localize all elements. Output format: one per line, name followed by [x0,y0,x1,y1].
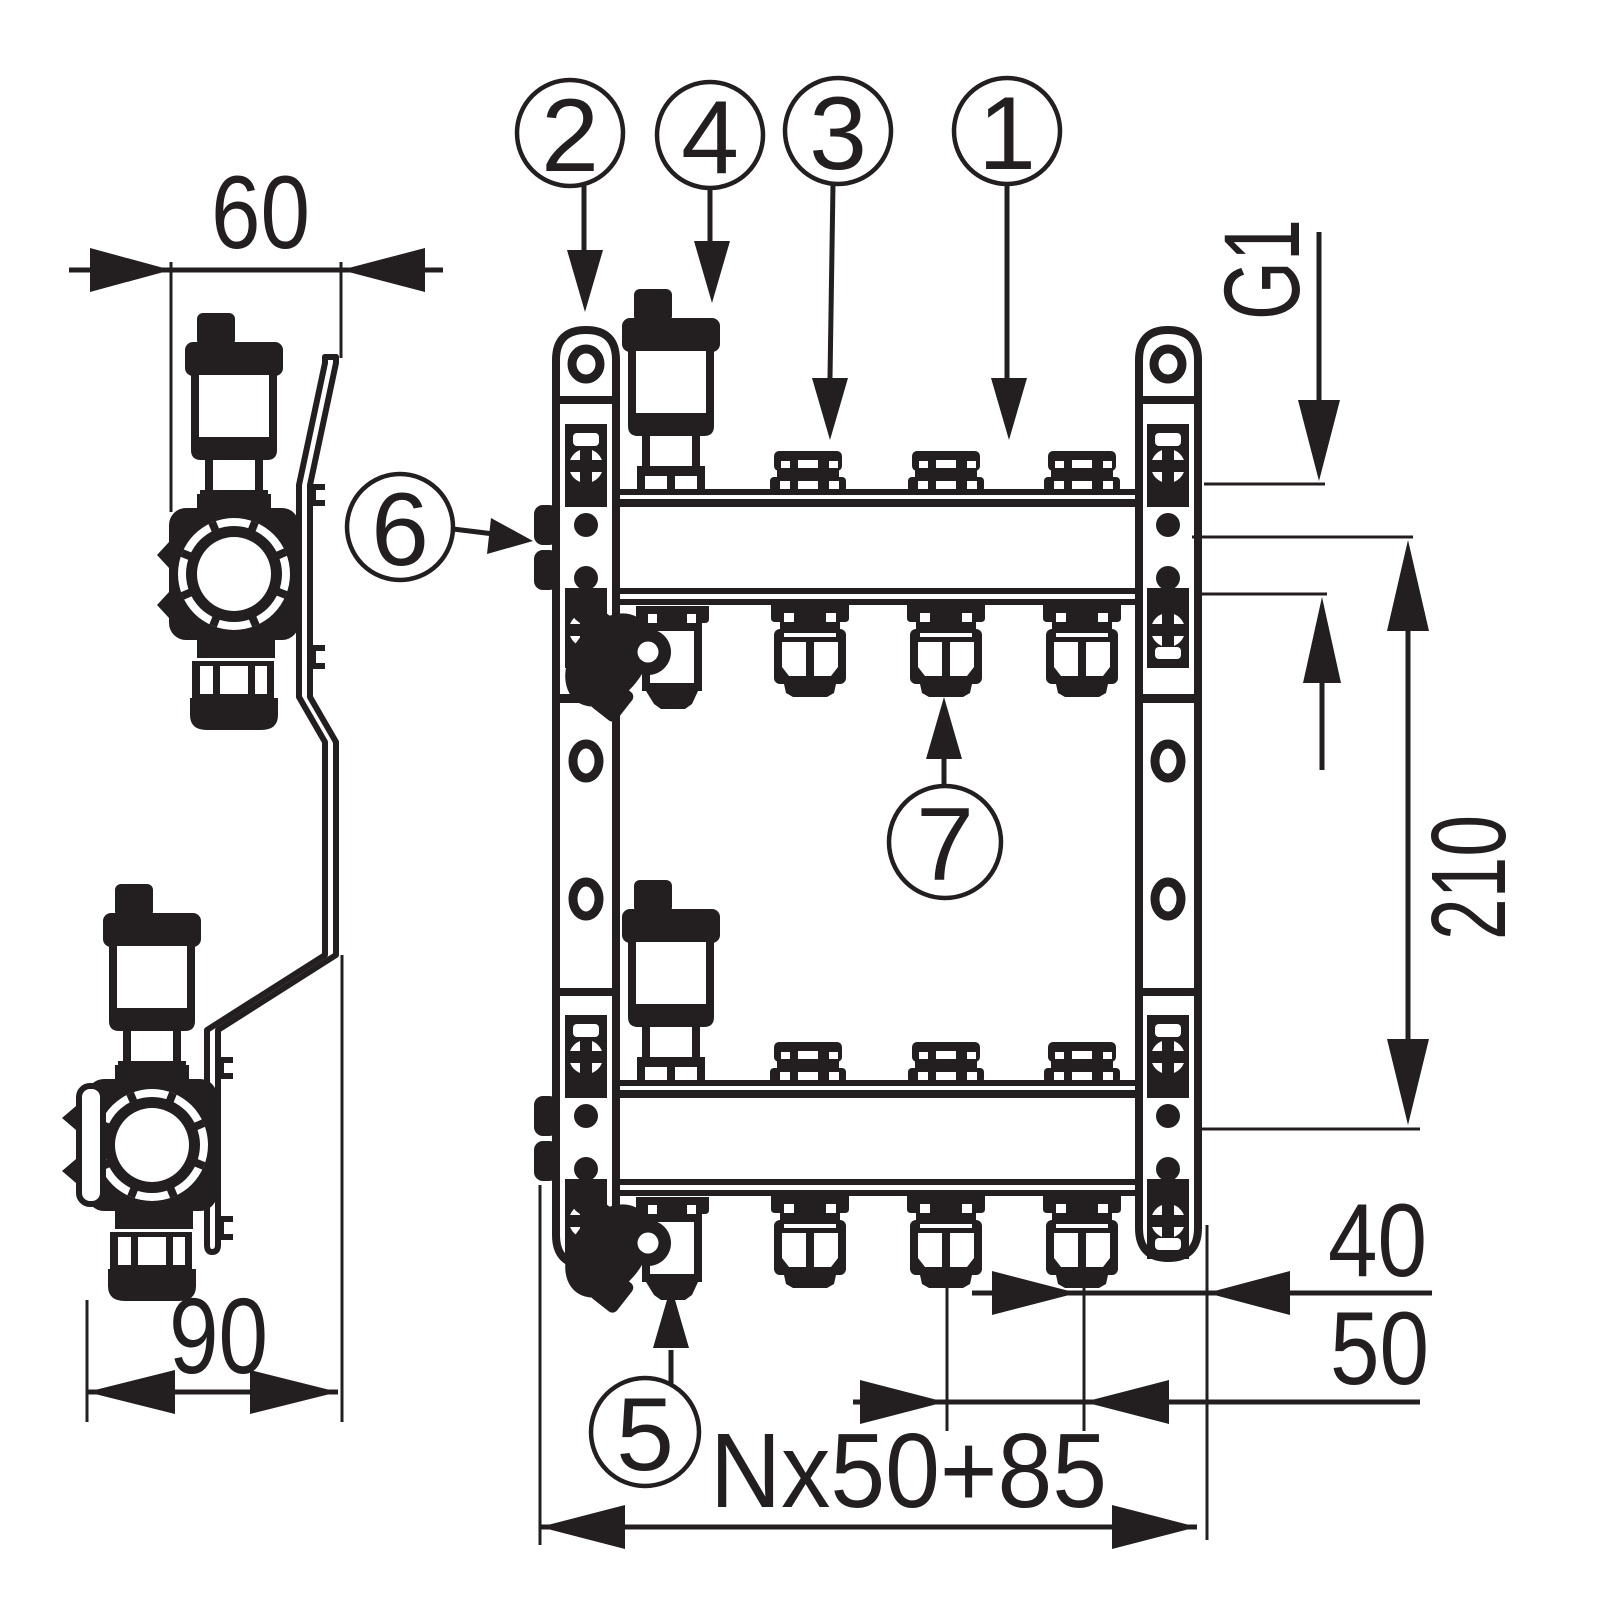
svg-text:2: 2 [541,78,599,194]
svg-text:6: 6 [371,472,429,588]
svg-text:7: 7 [916,787,974,903]
svg-text:G1: G1 [1201,219,1322,320]
svg-text:90: 90 [169,1275,268,1396]
svg-text:5: 5 [616,1377,674,1493]
svg-text:40: 40 [1328,1183,1427,1299]
svg-text:Nx50+85: Nx50+85 [710,1412,1107,1530]
svg-text:3: 3 [809,76,867,192]
svg-text:4: 4 [681,80,739,196]
svg-text:50: 50 [1330,1291,1429,1407]
svg-text:60: 60 [211,155,310,271]
svg-text:1: 1 [978,76,1036,192]
svg-text:210: 210 [1410,815,1528,940]
